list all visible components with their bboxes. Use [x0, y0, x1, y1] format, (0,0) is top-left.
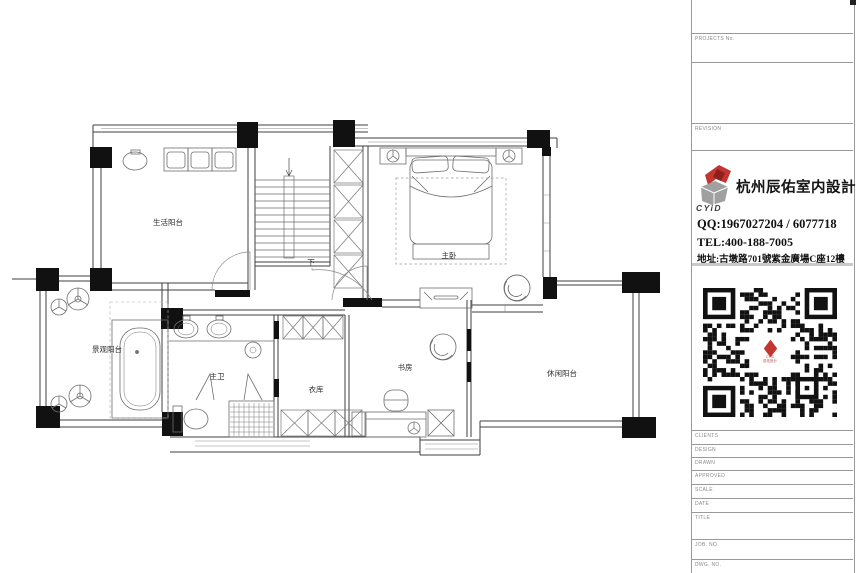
field-clients: CLIENTS: [695, 433, 718, 439]
field-drawn: DRAWN: [695, 460, 715, 466]
qq-line: QQ:1967027204 / 6077718: [697, 217, 854, 232]
company-logo: [695, 163, 735, 205]
plants: [51, 288, 91, 412]
field-scale: SCALE: [695, 487, 713, 493]
field-job-no: JOB. NO.: [695, 542, 719, 548]
staircase: [255, 158, 330, 258]
company-name: 杭州辰佑室内設計: [736, 176, 854, 197]
room-label-view-balcony: 景观阳台: [92, 344, 122, 354]
logo-acronym: CYiD: [696, 203, 722, 213]
panel-left-border: [691, 0, 692, 573]
bedroom-armchair: [504, 275, 530, 301]
stair-down-label: 下: [307, 258, 315, 267]
field-dwg-no: DWG. NO.: [695, 562, 721, 568]
bathtub: [112, 320, 168, 418]
bed: [406, 148, 496, 259]
revision-label: REVISION: [695, 126, 721, 132]
room-label-laundry-balcony: 生活阳台: [153, 217, 183, 227]
field-approved: APPROVED: [695, 473, 725, 479]
room-label-master-bedroom: 主卧: [442, 250, 457, 260]
closet-cabinets: [281, 316, 362, 436]
field-title: TITLE: [695, 515, 710, 521]
room-label-study: 书房: [398, 362, 413, 372]
room-label-leisure-balcony: 休闲阳台: [547, 368, 577, 378]
qr-code: CYID辰佑設計: [703, 288, 837, 417]
room-label-closet: 衣库: [309, 384, 324, 394]
title-block: PROJECTS No. REVISION CYiD 杭州辰佑室内設計 QQ:1…: [690, 0, 856, 573]
panel-right-border: [854, 0, 855, 573]
field-date: DATE: [695, 501, 709, 507]
tv-bench: [420, 288, 472, 308]
room-label-master-bath: 主卫: [210, 371, 225, 381]
tel-line: TEL:400-188-7005: [697, 235, 854, 250]
qr-center-logo: CYID辰佑設計: [755, 338, 785, 368]
tub-dashed-marker: [110, 302, 168, 418]
sheet-corner-tick: [850, 0, 856, 5]
floor-plan: 生活阳台 主卧 景观阳台 主卫 衣库 书房 休闲阳台 下: [0, 0, 692, 573]
project-no-label: PROJECTS No.: [695, 36, 734, 42]
field-design: DESIGN: [695, 447, 716, 453]
study-furniture: [352, 334, 456, 437]
drawing-sheet: 生活阳台 主卧 景观阳台 主卫 衣库 书房 休闲阳台 下 PROJECTS No…: [0, 0, 860, 573]
columns: [36, 120, 660, 438]
laundry-fixtures: [123, 148, 236, 171]
